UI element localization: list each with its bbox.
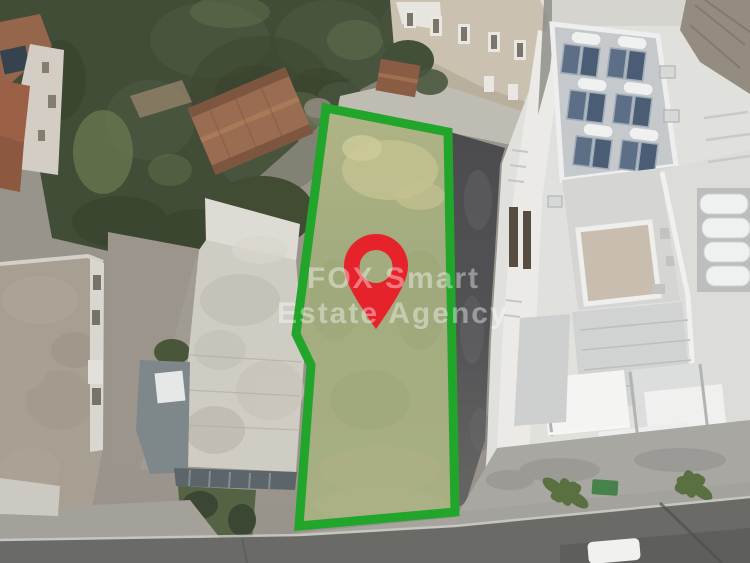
svg-text:Estate Agency: Estate Agency (277, 297, 509, 330)
svg-text:FOX Smart: FOX Smart (307, 262, 480, 295)
